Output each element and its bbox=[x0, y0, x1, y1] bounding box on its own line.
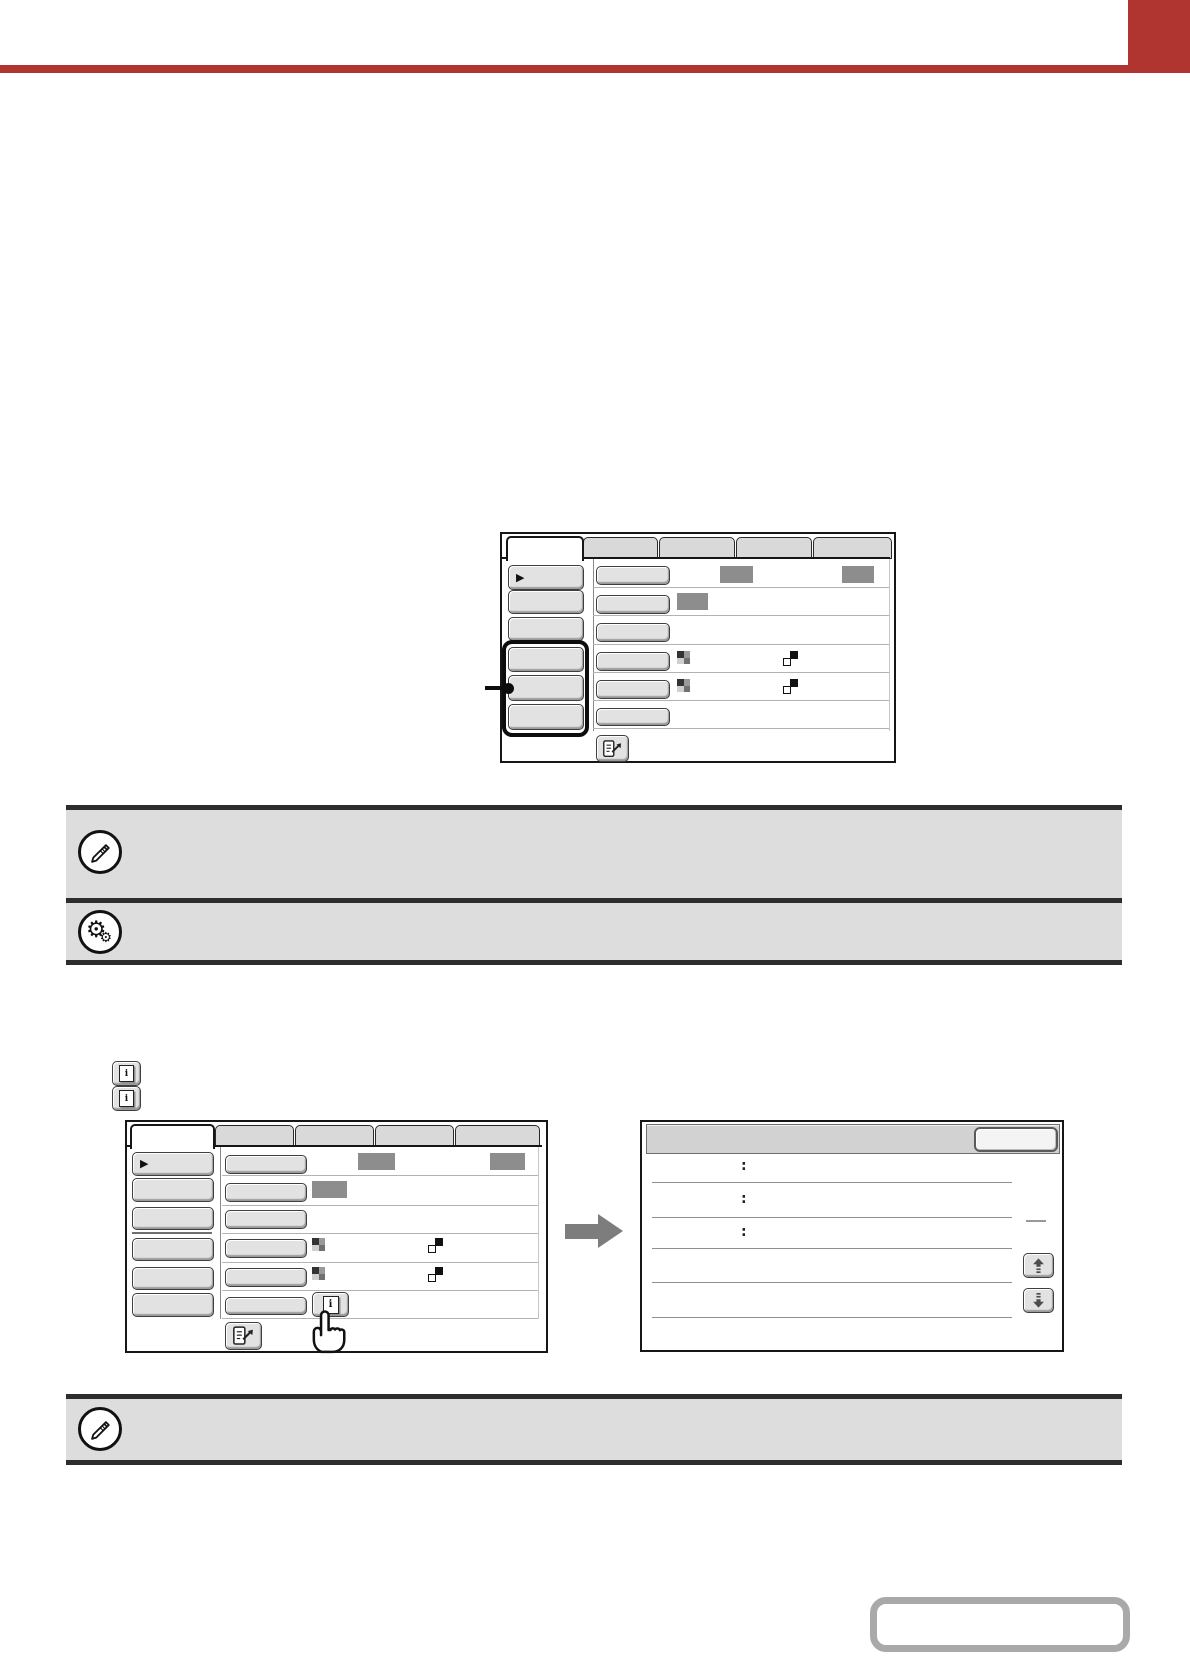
tab[interactable] bbox=[295, 1125, 374, 1147]
scroll-up-button[interactable] bbox=[1023, 1253, 1054, 1278]
setting-key-row2[interactable] bbox=[596, 595, 670, 614]
tab[interactable] bbox=[813, 537, 892, 559]
setting-key-row6[interactable] bbox=[225, 1297, 307, 1315]
screen-information-list: : : : bbox=[640, 1120, 1064, 1352]
value-placeholder bbox=[842, 566, 874, 583]
down-arrow-icon bbox=[1031, 1292, 1046, 1309]
field-colon: : bbox=[741, 1159, 747, 1173]
color-mode-icon bbox=[312, 1267, 325, 1280]
value-placeholder bbox=[490, 1153, 525, 1170]
row-separator bbox=[593, 615, 889, 616]
row-separator bbox=[652, 1217, 1012, 1218]
value-placeholder bbox=[358, 1153, 395, 1170]
row-separator bbox=[222, 1262, 538, 1263]
note-strip-group: ⚙ ⚙ bbox=[66, 805, 1122, 965]
setting-key-row1[interactable] bbox=[225, 1155, 307, 1174]
setting-key-row4[interactable] bbox=[596, 652, 670, 671]
callout-dot bbox=[503, 683, 514, 694]
row-separator bbox=[652, 1317, 1012, 1318]
information-icon: i bbox=[119, 1090, 134, 1107]
menu-key-3[interactable] bbox=[508, 617, 584, 641]
pencil-icon bbox=[78, 1407, 122, 1451]
row-separator bbox=[652, 1182, 1012, 1183]
row-separator bbox=[222, 1233, 538, 1234]
page-counter-bar bbox=[1026, 1220, 1046, 1222]
row-separator bbox=[593, 672, 889, 673]
two-sided-icon bbox=[783, 651, 798, 666]
selected-arrow-icon: ▶ bbox=[516, 572, 524, 583]
menu-key-6[interactable] bbox=[132, 1293, 214, 1317]
value-placeholder bbox=[312, 1181, 347, 1198]
tab-active[interactable] bbox=[506, 536, 584, 561]
panel-right-edge bbox=[889, 559, 890, 731]
system-settings-shortcut-button[interactable] bbox=[596, 735, 629, 762]
color-mode-icon bbox=[312, 1238, 325, 1251]
setting-key-row3[interactable] bbox=[596, 623, 670, 642]
tab[interactable] bbox=[583, 537, 658, 559]
document-arrow-icon bbox=[601, 739, 625, 759]
note-strip: ⚙ ⚙ bbox=[66, 903, 1122, 960]
screen-settings-1: ▶ bbox=[500, 532, 896, 763]
manual-page: ▶ bbox=[0, 0, 1190, 1656]
menu-key-1[interactable]: ▶ bbox=[508, 565, 584, 590]
gear-small: ⚙ bbox=[100, 931, 113, 945]
tab-active[interactable] bbox=[130, 1124, 215, 1149]
menu-key-6[interactable] bbox=[508, 704, 584, 730]
flow-arrow-head bbox=[598, 1214, 623, 1248]
panel-divider bbox=[220, 1147, 221, 1319]
up-arrow-icon bbox=[1031, 1257, 1046, 1274]
menu-key-3[interactable] bbox=[132, 1207, 214, 1230]
document-arrow-icon bbox=[231, 1325, 257, 1347]
information-key[interactable]: i bbox=[112, 1086, 141, 1111]
menu-key-2[interactable] bbox=[132, 1178, 214, 1202]
value-placeholder bbox=[677, 593, 708, 610]
setting-key-row5[interactable] bbox=[596, 680, 670, 699]
menu-key-5[interactable] bbox=[132, 1267, 214, 1290]
setting-key-row4[interactable] bbox=[225, 1239, 307, 1258]
menu-key-4[interactable] bbox=[132, 1238, 214, 1261]
setting-key-row2[interactable] bbox=[225, 1183, 307, 1202]
setting-key-row5[interactable] bbox=[225, 1268, 307, 1287]
row-separator bbox=[222, 1318, 538, 1319]
screen-settings-2: ▶ i bbox=[125, 1120, 548, 1353]
menu-group-divider bbox=[132, 1232, 212, 1234]
flow-arrow bbox=[565, 1224, 598, 1239]
panel-divider bbox=[593, 559, 594, 731]
value-placeholder bbox=[720, 566, 753, 583]
menu-key-4[interactable] bbox=[508, 647, 584, 672]
tab[interactable] bbox=[455, 1125, 540, 1147]
tab[interactable] bbox=[215, 1125, 294, 1147]
panel-right-edge bbox=[538, 1147, 539, 1319]
setting-key-row6[interactable] bbox=[596, 708, 670, 726]
pencil-icon bbox=[78, 830, 122, 874]
dialog-ok-button[interactable] bbox=[974, 1127, 1058, 1152]
color-mode-icon bbox=[677, 651, 690, 664]
setting-key-row3[interactable] bbox=[225, 1210, 307, 1229]
row-separator bbox=[222, 1205, 538, 1206]
row-separator bbox=[593, 728, 889, 729]
information-icon: i bbox=[119, 1065, 134, 1082]
chapter-corner-tab bbox=[1128, 0, 1190, 73]
row-separator bbox=[593, 644, 889, 645]
two-sided-icon bbox=[783, 679, 798, 694]
tab[interactable] bbox=[659, 537, 735, 559]
tab[interactable] bbox=[736, 537, 812, 559]
note-strip bbox=[66, 810, 1122, 898]
information-key[interactable]: i bbox=[112, 1061, 141, 1086]
chapter-rule bbox=[0, 65, 1190, 73]
selected-arrow-icon: ▶ bbox=[140, 1158, 148, 1169]
row-separator bbox=[593, 700, 889, 701]
row-separator bbox=[222, 1290, 538, 1291]
row-separator bbox=[652, 1248, 1012, 1249]
pointing-hand-icon bbox=[305, 1308, 353, 1358]
setting-key-row1[interactable] bbox=[596, 566, 670, 585]
system-settings-shortcut-button[interactable] bbox=[225, 1322, 262, 1350]
row-separator bbox=[593, 587, 889, 588]
field-colon: : bbox=[741, 1225, 747, 1239]
menu-key-5[interactable] bbox=[508, 675, 584, 701]
note-strip bbox=[66, 1394, 1122, 1465]
row-separator bbox=[652, 1282, 1012, 1283]
scroll-down-button[interactable] bbox=[1023, 1288, 1054, 1313]
contents-nav-button[interactable] bbox=[870, 1597, 1130, 1652]
two-sided-icon bbox=[428, 1238, 443, 1253]
tab[interactable] bbox=[375, 1125, 454, 1147]
menu-key-2[interactable] bbox=[508, 590, 584, 614]
field-colon: : bbox=[741, 1192, 747, 1206]
color-mode-icon bbox=[677, 679, 690, 692]
gears-icon: ⚙ ⚙ bbox=[78, 910, 122, 954]
row-separator bbox=[222, 1175, 538, 1176]
two-sided-icon bbox=[428, 1267, 443, 1282]
menu-key-1[interactable]: ▶ bbox=[132, 1152, 214, 1176]
